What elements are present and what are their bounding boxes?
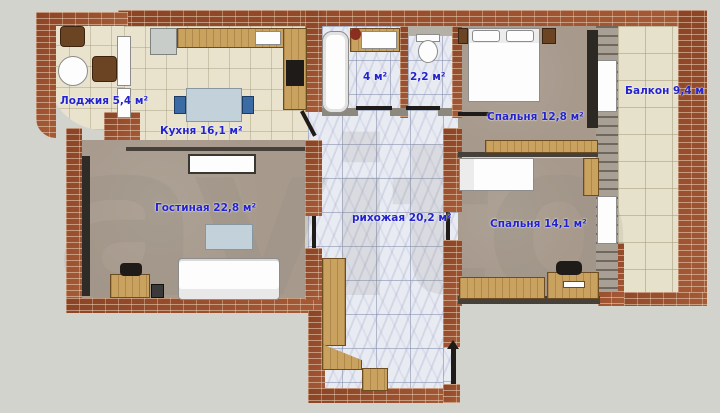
bedroom2-dresser xyxy=(459,277,545,299)
bedroom2-wardrobe-right xyxy=(583,158,599,196)
bedroom1-pillow-left xyxy=(472,30,500,42)
wall-top xyxy=(118,10,707,26)
bathroom-door xyxy=(356,106,392,110)
bedroom1-wardrobe-dark xyxy=(587,30,598,128)
floor-plan: avito xyxy=(0,0,720,413)
wall-right xyxy=(678,10,707,306)
loggia-round-table xyxy=(58,56,88,86)
bedroom1-balcony-window xyxy=(597,60,617,112)
loggia-kitchen-window xyxy=(117,36,131,86)
room-label-kitchen: Кухня 16,1 м² xyxy=(160,125,243,137)
living-desk xyxy=(110,274,150,298)
loggia-armchair-1 xyxy=(60,26,85,47)
bedroom1-pillow-right xyxy=(506,30,534,42)
living-wall-shelf xyxy=(82,156,90,296)
sofa xyxy=(178,258,280,300)
bedroom2-desk-drawer xyxy=(563,281,585,288)
wall-loggia-top xyxy=(36,12,128,26)
room-label-bedroom1: Спальня 12,8 м² xyxy=(487,111,584,123)
bedroom1-wardrobe-row xyxy=(485,140,598,153)
bathtub xyxy=(322,31,349,113)
wall-kitchen-living-line xyxy=(126,147,305,151)
bath-plant xyxy=(350,28,361,40)
wall-living-hall-lower xyxy=(305,248,322,300)
wall-living-hall-upper xyxy=(305,140,322,216)
hall-wardrobe-column xyxy=(322,258,346,346)
wall-hall-right-lower xyxy=(443,384,460,403)
balcony-floor xyxy=(618,26,678,292)
wall-loggia-curve xyxy=(36,12,56,138)
wc-door xyxy=(406,106,440,110)
wall-living-bottom xyxy=(66,298,322,313)
dining-chair-right xyxy=(242,96,254,114)
fridge xyxy=(150,28,177,55)
bedroom2-balcony-window xyxy=(597,196,617,244)
room-label-bath: 4 м² xyxy=(363,71,387,83)
room-label-living: Гостиная 22,8 м² xyxy=(155,202,256,214)
entrance-door xyxy=(451,347,456,384)
room-label-balcony: Балкон 9,4 м xyxy=(625,85,704,97)
room-label-wc: 2,2 м² xyxy=(410,71,445,83)
wall-wc-door-right xyxy=(438,108,452,116)
room-label-hallway: рихожая 20,2 м² xyxy=(352,212,452,224)
hall-shoe-cabinet xyxy=(362,368,388,391)
bedroom2-single-bed xyxy=(459,158,534,191)
bedroom1-door xyxy=(458,112,490,116)
room-label-loggia: Лоджия 5,4 м² xyxy=(60,95,148,107)
wall-living-left xyxy=(66,128,82,313)
living-room-door xyxy=(312,216,316,248)
dining-chair-left xyxy=(174,96,186,114)
tv-stand xyxy=(188,154,256,174)
bedroom1-nightstand-right xyxy=(542,28,556,44)
room-label-bedroom2: Спальня 14,1 м² xyxy=(490,218,587,230)
kitchen-sink xyxy=(255,31,281,45)
living-desk-chair xyxy=(120,263,142,276)
bath-sink xyxy=(361,31,397,49)
coffee-table xyxy=(205,224,253,250)
bedroom2-desk-chair xyxy=(556,261,582,275)
toilet-bowl xyxy=(418,40,438,63)
printer xyxy=(151,284,164,298)
wall-kitchen-bath xyxy=(305,10,322,112)
stove xyxy=(286,60,304,86)
loggia-armchair-2 xyxy=(92,56,117,82)
wall-bath-wc-divider xyxy=(400,26,408,118)
dining-table xyxy=(186,88,242,122)
bedroom1-nightstand-left xyxy=(458,28,468,44)
entrance-door-arrow-icon xyxy=(447,340,459,349)
